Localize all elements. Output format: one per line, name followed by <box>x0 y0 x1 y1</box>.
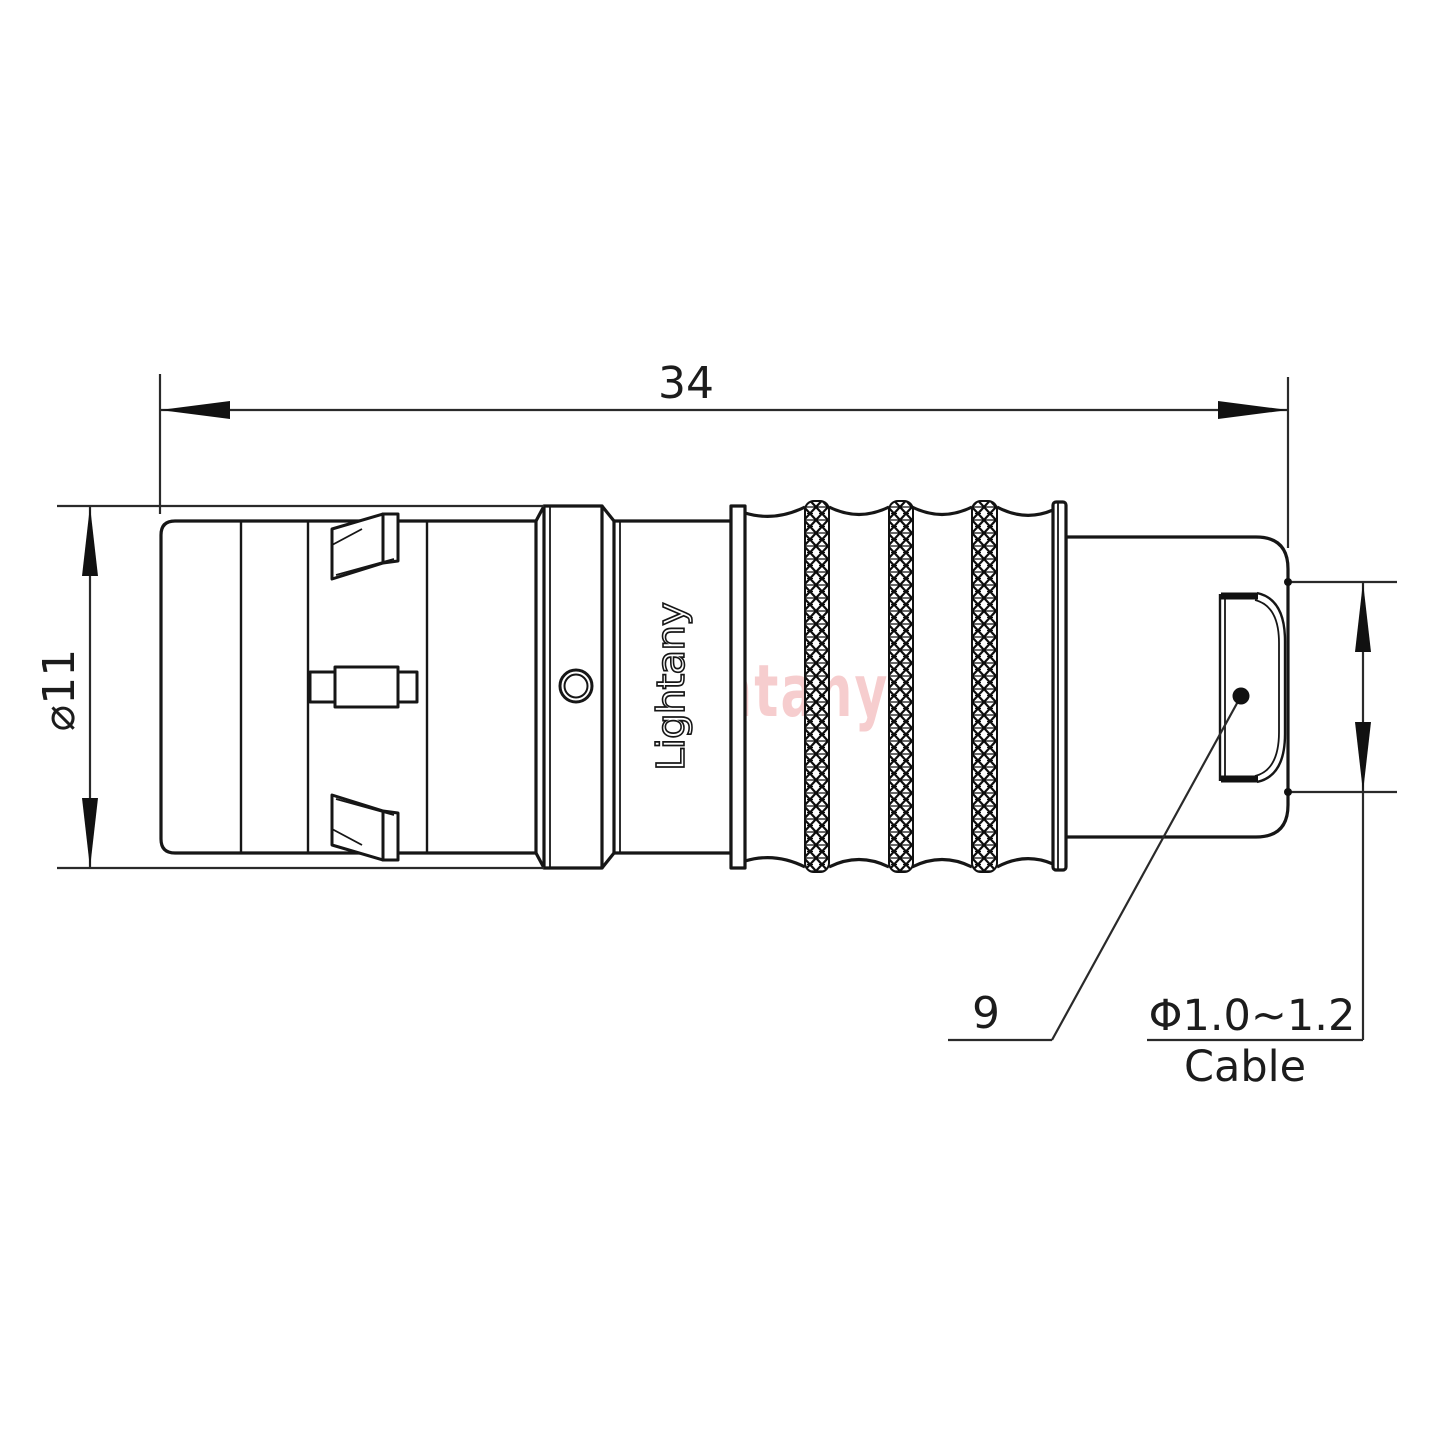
large-ring <box>544 506 602 868</box>
connector-body: Lightany <box>161 501 1288 872</box>
technical-drawing-canvas: Lightany <box>0 0 1440 1440</box>
cable-boot-outline <box>1066 537 1288 837</box>
engraved-brand-text: Lightany <box>649 602 693 771</box>
knurl-band <box>889 501 913 872</box>
arrow-down <box>82 798 98 868</box>
front-latch-section <box>161 514 536 860</box>
knurl-band <box>972 501 997 872</box>
latch-middle-pin <box>310 667 417 707</box>
front-collar <box>731 506 745 868</box>
dim-overall-length-value: 34 <box>658 358 714 409</box>
arrow-up <box>82 506 98 576</box>
cable-label: Cable <box>1184 1042 1306 1092</box>
arrow-down <box>1355 722 1371 792</box>
knurl-band <box>805 501 829 872</box>
arrow-right <box>1218 401 1288 419</box>
cable-diameter-range-label: Φ1.0~1.2 <box>1149 991 1356 1041</box>
dim-rear-length-value: 9 <box>972 988 1000 1039</box>
rear-collar <box>1053 502 1066 870</box>
engraved-barrel: Lightany <box>614 521 731 853</box>
leader-dot <box>1233 688 1250 705</box>
arrow-left <box>160 401 230 419</box>
arrow-up <box>1355 582 1371 652</box>
dim-body-diameter-value: ⌀11 <box>34 649 85 731</box>
